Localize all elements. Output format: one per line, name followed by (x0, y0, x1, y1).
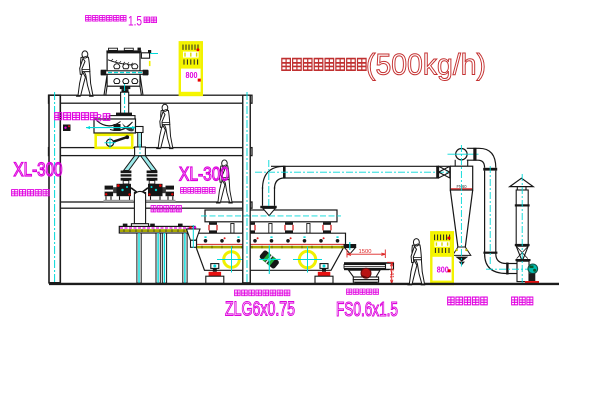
svg-text:XL-300: XL-300 (14, 160, 63, 181)
svg-text:XL-300: XL-300 (179, 165, 229, 186)
svg-text:ZLG6x0.75: ZLG6x0.75 (225, 299, 295, 321)
svg-text:800: 800 (186, 70, 198, 80)
svg-text:1.5: 1.5 (128, 13, 142, 29)
svg-text:(500kg/h): (500kg/h) (366, 49, 486, 82)
svg-text:FS0.6x1.5: FS0.6x1.5 (336, 299, 398, 321)
svg-text:1500: 1500 (359, 249, 372, 255)
svg-text:3: 3 (96, 113, 102, 125)
svg-text:541: 541 (388, 269, 394, 279)
svg-text:800: 800 (437, 265, 449, 275)
